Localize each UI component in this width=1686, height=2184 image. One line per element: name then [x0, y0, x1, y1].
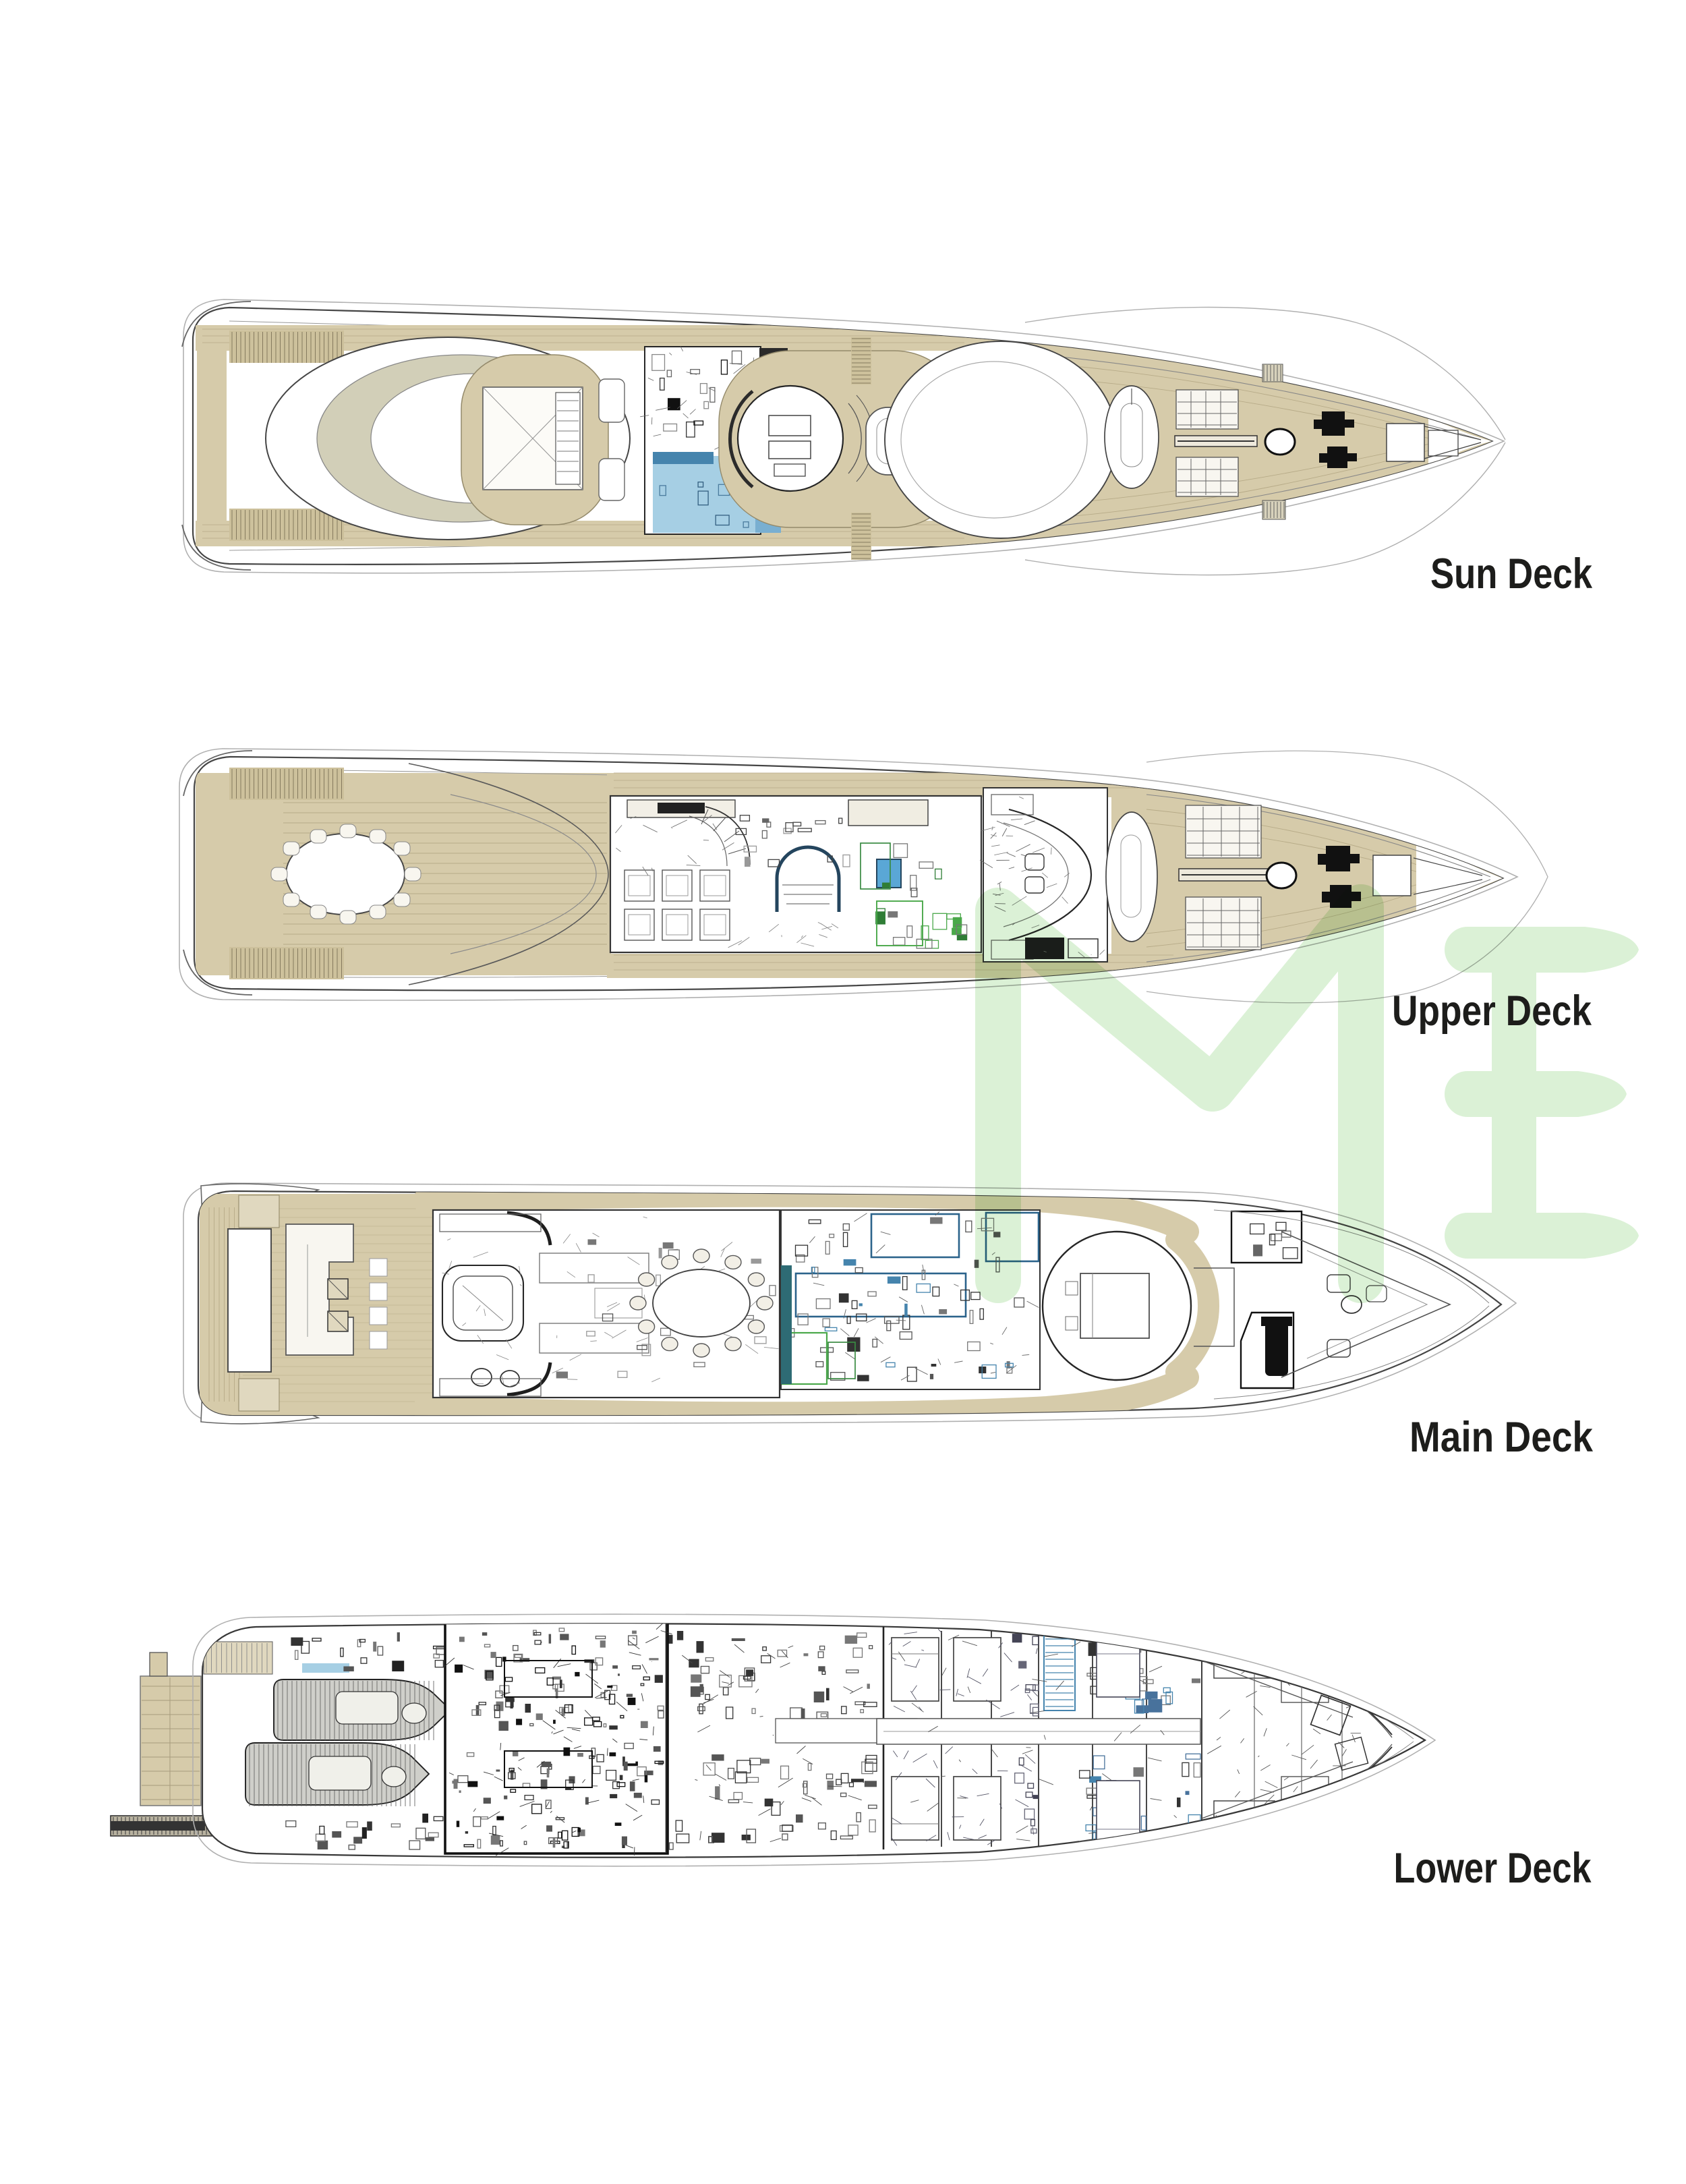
- svg-text:Main Deck: Main Deck: [1409, 1414, 1594, 1461]
- svg-text:Upper Deck: Upper Deck: [1392, 987, 1592, 1035]
- svg-text:Lower Deck: Lower Deck: [1394, 1845, 1592, 1892]
- svg-text:Sun Deck: Sun Deck: [1430, 550, 1593, 598]
